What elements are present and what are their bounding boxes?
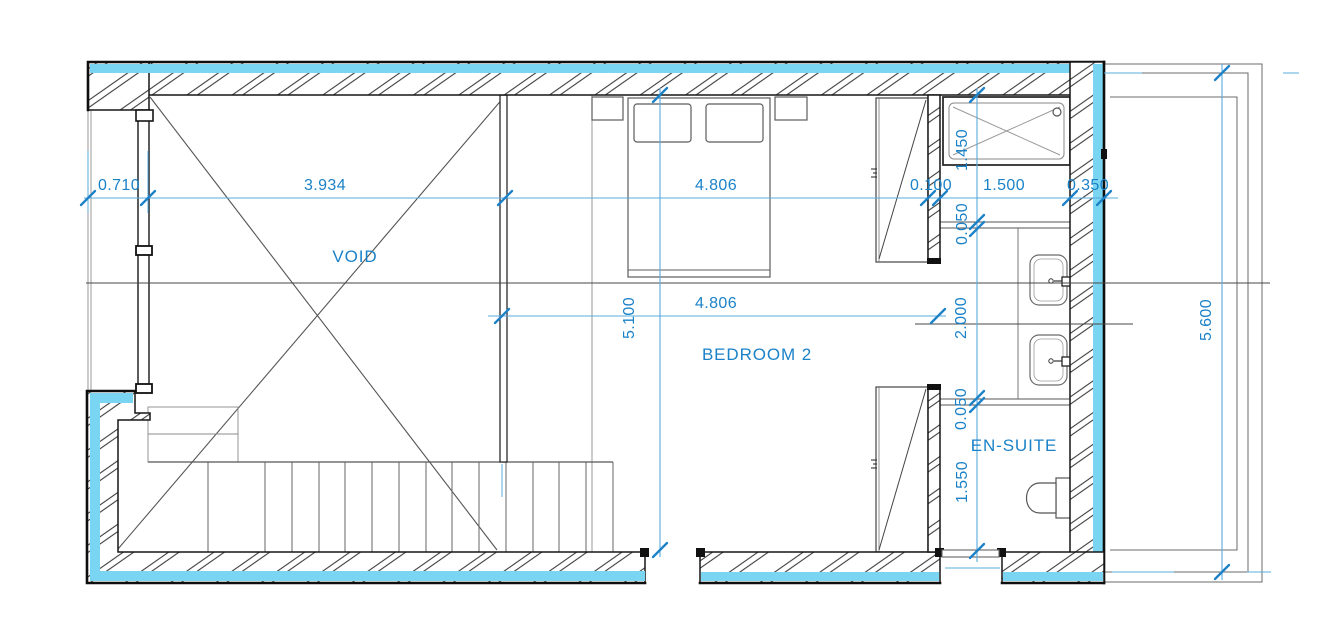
dim-value: 0.100 bbox=[910, 177, 952, 194]
opening-cap bbox=[696, 548, 705, 557]
middle-wall bbox=[500, 95, 507, 462]
divider-wall-cap-lower bbox=[927, 384, 941, 390]
void-diagonals bbox=[118, 97, 504, 550]
room-label-bedroom-2: BEDROOM 2 bbox=[702, 345, 812, 364]
window-joint-upper bbox=[136, 246, 152, 255]
sink-lower bbox=[1030, 335, 1071, 385]
dim-value: 0.710 bbox=[98, 177, 140, 194]
right-wall bbox=[1070, 62, 1107, 583]
left-window bbox=[88, 110, 152, 393]
window-joint-lower bbox=[136, 384, 152, 393]
terrace-deck bbox=[1097, 64, 1262, 582]
dim-value: 1.500 bbox=[983, 177, 1025, 194]
top-wall-highlight bbox=[90, 64, 1098, 73]
pillow-left bbox=[634, 104, 691, 142]
dim-value: 4.806 bbox=[695, 177, 737, 194]
toilet bbox=[1027, 478, 1072, 518]
window-head-tab bbox=[136, 110, 153, 121]
faucet-icon bbox=[1049, 359, 1053, 363]
dim-value: 0.350 bbox=[1067, 177, 1109, 194]
dim-value: 2.000 bbox=[953, 297, 970, 339]
shower-drain-icon bbox=[1053, 108, 1061, 116]
dim-value: 4.806 bbox=[695, 295, 737, 312]
dim-value: 3.934 bbox=[304, 177, 346, 194]
stair-landing-lower bbox=[148, 434, 238, 462]
toilet-bowl bbox=[1027, 483, 1057, 513]
deck-outline-middle bbox=[1104, 73, 1248, 572]
bottom-wall-ensuite bbox=[1002, 552, 1104, 583]
right-wall-marker bbox=[1101, 149, 1107, 159]
divider-wall-cap-upper bbox=[927, 258, 941, 264]
dim-value: 1.550 bbox=[954, 461, 971, 503]
divider-wall-lower bbox=[928, 387, 940, 552]
room-label-void: VOID bbox=[332, 247, 377, 266]
bottom-wall-ensuite-highlight bbox=[1003, 572, 1103, 581]
dim-value: 5.600 bbox=[1198, 299, 1215, 341]
pillow-right bbox=[706, 104, 763, 142]
nightstand-right bbox=[775, 97, 807, 120]
wardrobe-lower bbox=[871, 387, 928, 552]
nightstand-left bbox=[592, 97, 623, 120]
right-wall-highlight bbox=[1093, 64, 1103, 581]
dim-value: 5.100 bbox=[621, 297, 638, 339]
void-cross bbox=[118, 97, 504, 550]
dimension-terrace-depth: 5.600 bbox=[1104, 64, 1299, 580]
toilet-cistern bbox=[1056, 478, 1071, 518]
sink-upper bbox=[1030, 255, 1071, 305]
stair-landing-upper bbox=[148, 407, 238, 434]
staircase bbox=[148, 407, 613, 552]
dim-value: 0.050 bbox=[954, 203, 971, 245]
dim-value: 0.050 bbox=[953, 388, 970, 430]
bottom-wall-middle-highlight bbox=[701, 572, 939, 581]
floor-plan-canvas: 0.710 3.934 4.806 0.100 1.500 0.350 4.80… bbox=[0, 0, 1320, 630]
dim-value: 1.450 bbox=[954, 129, 971, 171]
room-label-en-suite: EN-SUITE bbox=[971, 436, 1058, 455]
opening-cap bbox=[640, 548, 649, 557]
bottom-wall-middle bbox=[700, 552, 940, 583]
stair-treads bbox=[265, 462, 613, 552]
